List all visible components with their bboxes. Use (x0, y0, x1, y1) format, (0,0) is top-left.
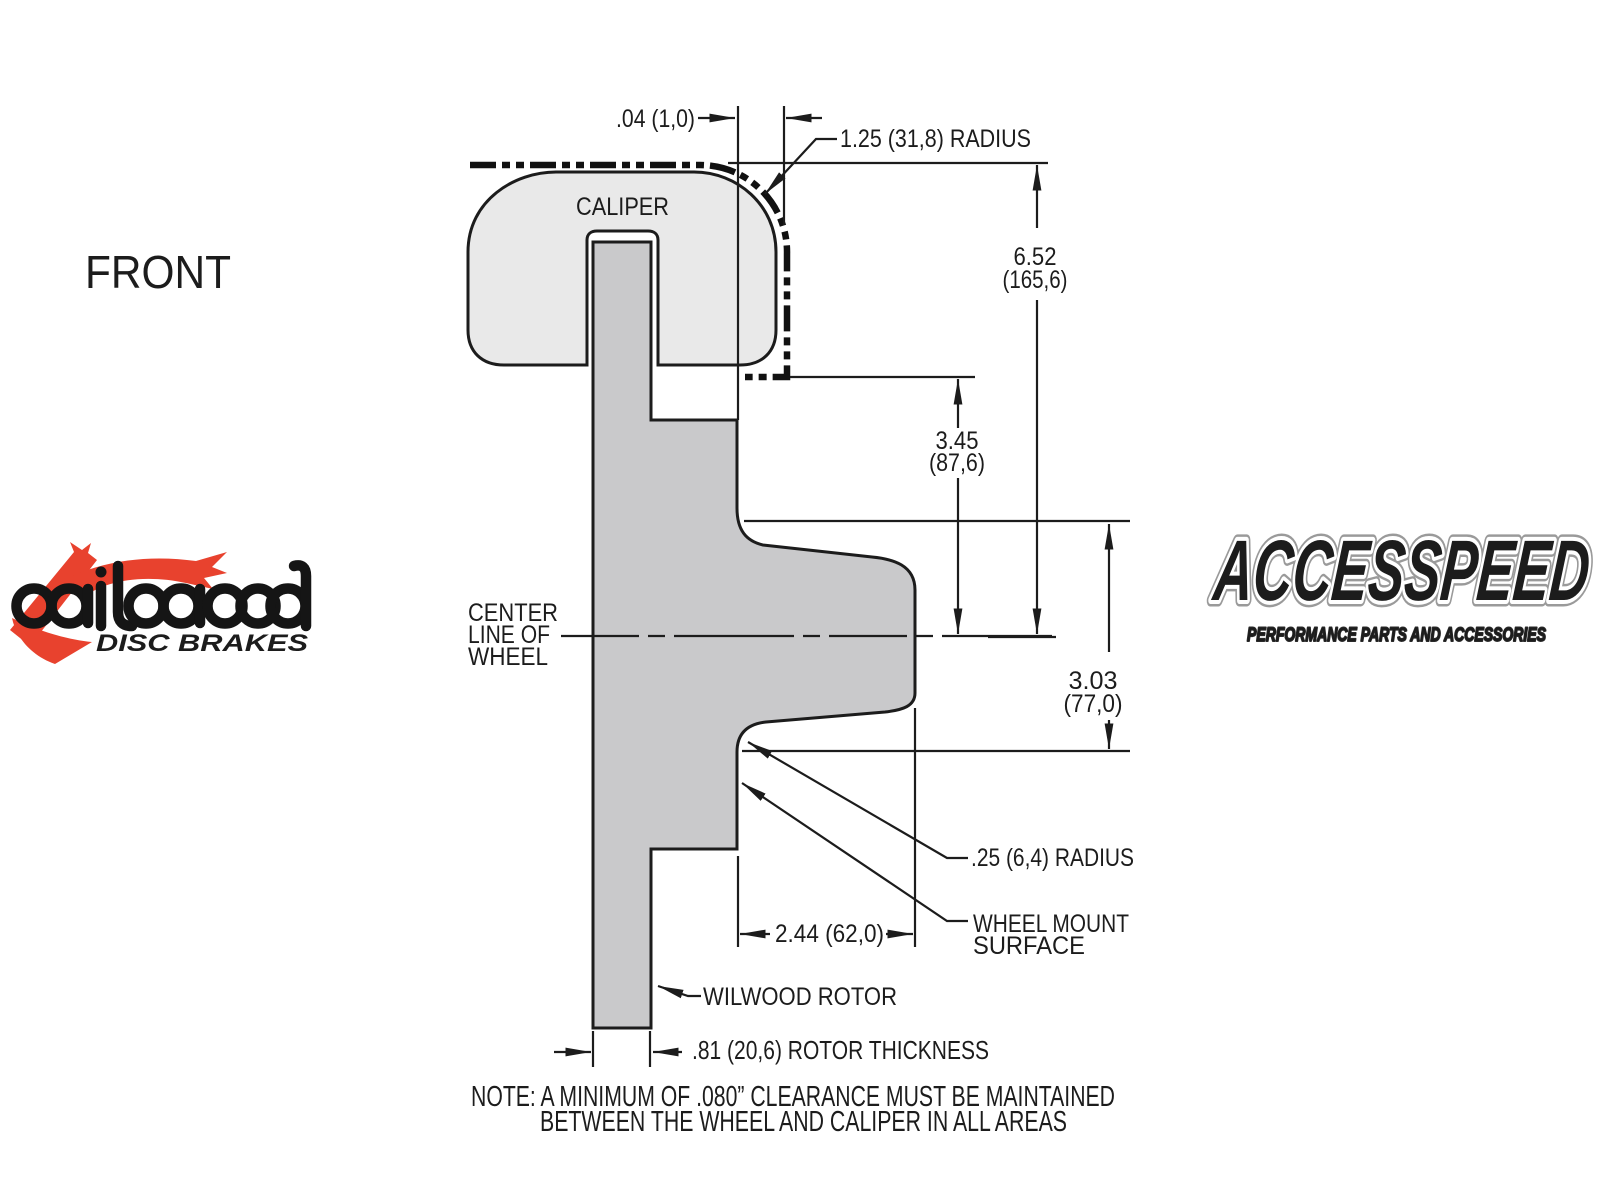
svg-text:1.25 (31,8) RADIUS: 1.25 (31,8) RADIUS (840, 125, 1031, 153)
svg-text:.25 (6,4) RADIUS: .25 (6,4) RADIUS (971, 844, 1134, 872)
svg-text:SURFACE: SURFACE (973, 932, 1085, 960)
svg-text:.81 (20,6) ROTOR THICKNESS: .81 (20,6) ROTOR THICKNESS (692, 1035, 989, 1065)
svg-text:(87,6): (87,6) (929, 449, 985, 477)
svg-text:WHEEL: WHEEL (468, 643, 548, 671)
svg-text:.04 (1,0): .04 (1,0) (616, 105, 695, 133)
svg-text:FRONT: FRONT (85, 246, 231, 298)
svg-text:(77,0): (77,0) (1064, 690, 1123, 718)
svg-text:PERFORMANCE PARTS AND ACCESSOR: PERFORMANCE PARTS AND ACCESSORIES (1247, 624, 1546, 646)
svg-text:CALIPER: CALIPER (576, 193, 669, 221)
svg-text:2.44 (62,0): 2.44 (62,0) (775, 920, 884, 948)
svg-text:(165,6): (165,6) (1003, 266, 1068, 294)
svg-text:ACCESSPEED: ACCESSPEED (1209, 523, 1594, 619)
svg-text:DISC BRAKES: DISC BRAKES (96, 630, 308, 657)
svg-text:BETWEEN THE WHEEL AND CALIPER: BETWEEN THE WHEEL AND CALIPER IN ALL ARE… (540, 1106, 1067, 1138)
svg-text:WILWOOD ROTOR: WILWOOD ROTOR (703, 983, 897, 1011)
